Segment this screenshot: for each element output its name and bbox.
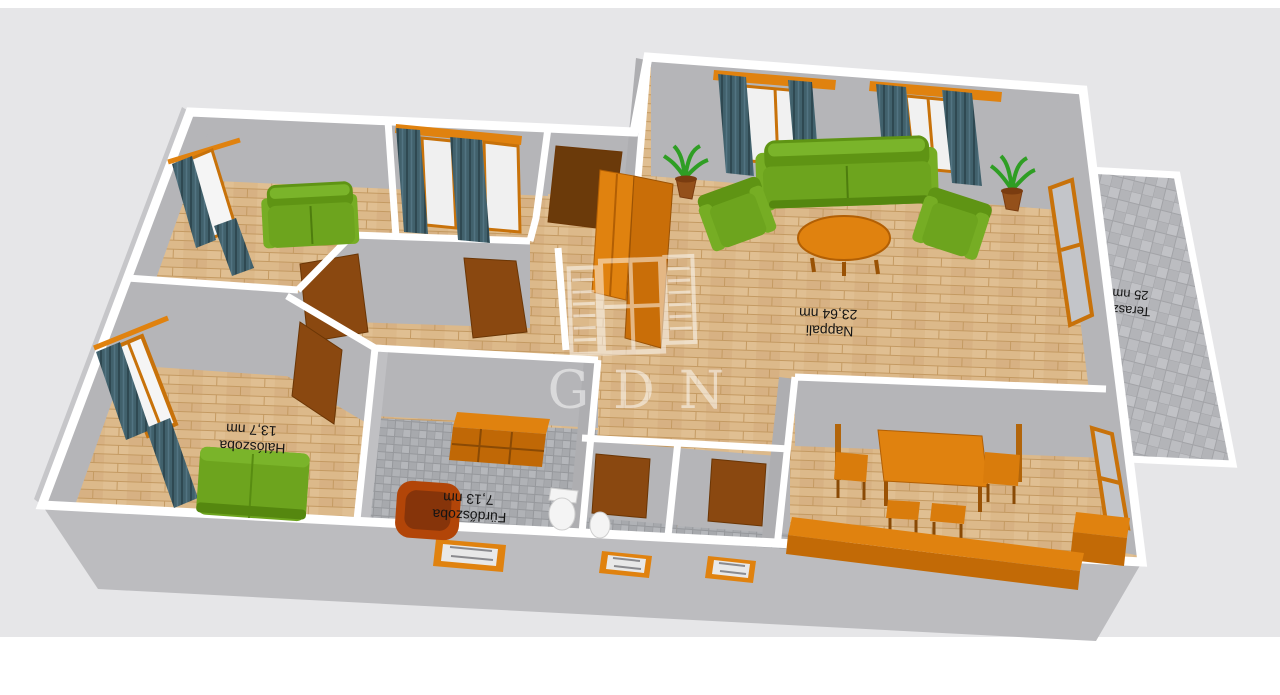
door-vestibule-2 <box>464 258 527 338</box>
loveseat <box>260 181 359 249</box>
room-label-nappali: Nappali 23,64 nm <box>798 305 857 340</box>
gdn-watermark-text: GDN <box>548 361 749 421</box>
door-wc2 <box>708 459 766 526</box>
coffee-table <box>798 216 890 276</box>
hall-room-window <box>395 124 522 243</box>
floorplan-render: Terasz 25 nm <box>0 0 1280 695</box>
sofa <box>755 135 939 211</box>
bed <box>196 446 310 522</box>
bathroom-cabinet <box>449 412 550 467</box>
door-wc1 <box>592 454 650 518</box>
floorplan-svg: Terasz 25 nm <box>0 0 1280 695</box>
toilet-wc <box>590 512 610 538</box>
building: Nappali 23,64 nm Hálószoba 13,7 nm Fürdő… <box>34 57 1142 641</box>
